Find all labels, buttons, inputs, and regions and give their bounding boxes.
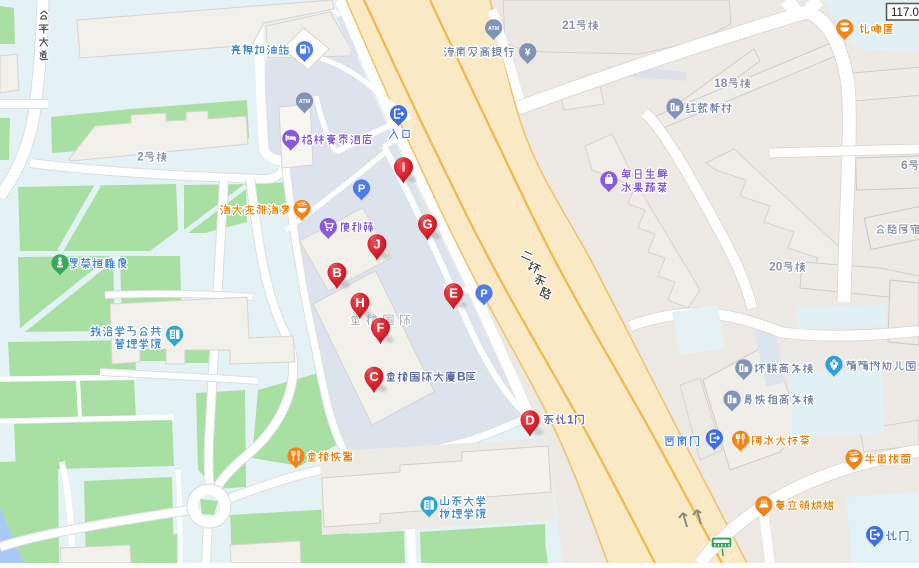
- svg-text:J: J: [373, 237, 380, 252]
- svg-text:2: 2: [137, 150, 144, 164]
- svg-text:H: H: [355, 295, 364, 310]
- svg-text:G: G: [422, 217, 432, 232]
- svg-text:F: F: [377, 320, 385, 335]
- svg-text:C: C: [369, 369, 379, 384]
- svg-text:117.07: 117.07: [891, 7, 919, 19]
- svg-text:I: I: [402, 160, 406, 175]
- svg-text:1: 1: [569, 18, 576, 32]
- svg-text:ATM: ATM: [299, 99, 311, 105]
- svg-text:8: 8: [721, 76, 728, 90]
- svg-text:P: P: [358, 183, 365, 195]
- svg-text:B: B: [457, 370, 466, 384]
- svg-text:B: B: [332, 265, 341, 280]
- svg-text:0: 0: [776, 260, 783, 274]
- svg-text:D: D: [525, 413, 534, 428]
- svg-text:E: E: [449, 286, 458, 301]
- svg-text:P: P: [480, 288, 487, 300]
- svg-text:6: 6: [901, 158, 908, 172]
- svg-text:ATM: ATM: [488, 26, 500, 32]
- svg-text:1: 1: [567, 413, 574, 427]
- svg-text:¥: ¥: [525, 46, 531, 58]
